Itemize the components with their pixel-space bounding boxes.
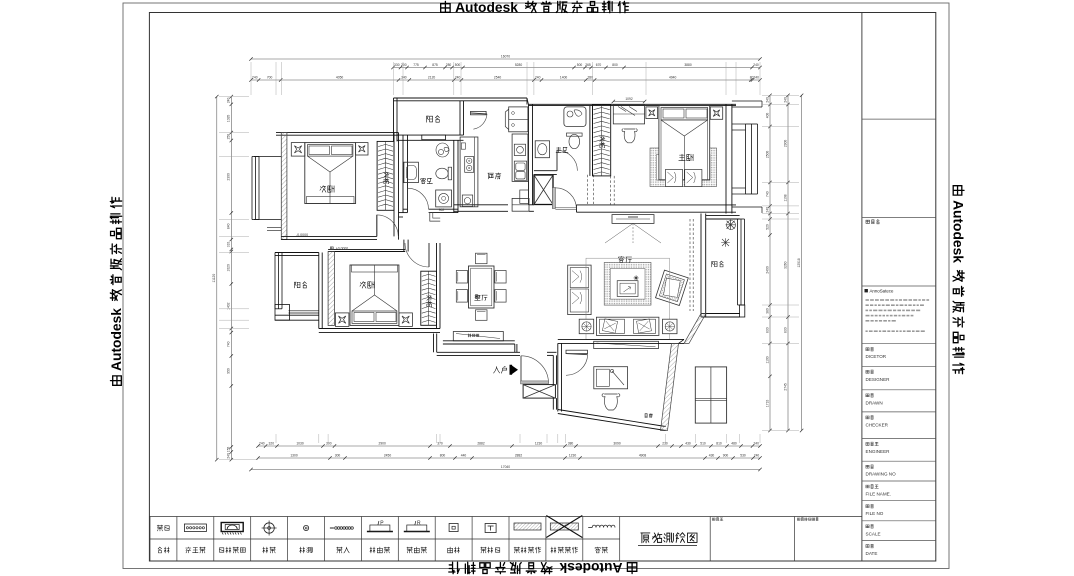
svg-text:ENGINEER: ENGINEER — [866, 449, 891, 454]
svg-text:2120: 2120 — [428, 75, 436, 79]
svg-text:DICETOR: DICETOR — [866, 354, 887, 359]
svg-text:830: 830 — [765, 327, 769, 333]
svg-text:800: 800 — [612, 63, 618, 67]
svg-text:240: 240 — [754, 453, 760, 457]
svg-text:CHECKER: CHECKER — [866, 422, 889, 427]
svg-text:2540: 2540 — [494, 75, 502, 79]
svg-text:2450: 2450 — [384, 453, 392, 457]
svg-text:440: 440 — [461, 453, 467, 457]
svg-text:280: 280 — [446, 63, 452, 67]
svg-text:240: 240 — [535, 75, 541, 79]
svg-text:430: 430 — [685, 441, 691, 445]
svg-text:265: 265 — [585, 63, 591, 67]
svg-text:700: 700 — [267, 75, 273, 79]
svg-text:FILE NO: FILE NO — [866, 511, 884, 516]
svg-text:310: 310 — [227, 242, 231, 248]
svg-text:DRAWING NO: DRAWING NO — [866, 472, 897, 477]
svg-text:775: 775 — [413, 63, 419, 67]
svg-text:962: 962 — [439, 208, 445, 212]
svg-text:1400: 1400 — [560, 75, 568, 79]
svg-text:830: 830 — [783, 327, 787, 333]
svg-text:240: 240 — [753, 441, 759, 445]
svg-text:+0.0000: +0.0000 — [336, 247, 348, 251]
svg-text:240: 240 — [753, 63, 759, 67]
svg-text:2882: 2882 — [515, 453, 523, 457]
svg-text:12018: 12018 — [797, 258, 801, 267]
svg-text:2500: 2500 — [765, 151, 769, 159]
svg-text:155: 155 — [227, 447, 231, 453]
svg-text:380: 380 — [568, 441, 574, 445]
svg-text:Autodesk: Autodesk — [455, 0, 518, 15]
svg-text:340: 340 — [401, 75, 407, 79]
svg-text:520: 520 — [765, 224, 769, 230]
svg-text:-0.0000: -0.0000 — [296, 233, 308, 237]
svg-text:480: 480 — [731, 441, 737, 445]
svg-text:FILE NAME.: FILE NAME. — [866, 492, 892, 497]
svg-text:240: 240 — [455, 75, 461, 79]
svg-text:16070: 16070 — [501, 54, 510, 58]
svg-text:2400: 2400 — [765, 266, 769, 274]
svg-text:2882: 2882 — [477, 441, 485, 445]
svg-text:240: 240 — [252, 75, 258, 79]
svg-text:670: 670 — [596, 63, 602, 67]
svg-text:SCALE: SCALE — [866, 531, 881, 536]
svg-text:DATE: DATE — [866, 551, 878, 556]
svg-text:320: 320 — [269, 441, 275, 445]
svg-text:4908: 4908 — [639, 453, 647, 457]
svg-text:430: 430 — [709, 453, 715, 457]
svg-text:Autodesk: Autodesk — [951, 200, 966, 263]
svg-text:510: 510 — [700, 441, 706, 445]
svg-text:3880: 3880 — [684, 63, 692, 67]
svg-text:11120: 11120 — [212, 274, 216, 283]
svg-text:240: 240 — [765, 207, 769, 213]
svg-text:240: 240 — [783, 97, 787, 103]
svg-text:3090: 3090 — [613, 441, 621, 445]
svg-text:1230: 1230 — [535, 441, 543, 445]
svg-text:740: 740 — [765, 191, 769, 197]
svg-text:Autodesk: Autodesk — [109, 308, 124, 371]
svg-text:740: 740 — [227, 341, 231, 347]
svg-text:530: 530 — [740, 453, 746, 457]
svg-text:2900: 2900 — [783, 140, 787, 148]
svg-text:2300: 2300 — [227, 173, 231, 181]
svg-text:500: 500 — [577, 63, 583, 67]
svg-text:230: 230 — [662, 441, 668, 445]
svg-text:240: 240 — [227, 453, 231, 459]
svg-text:875: 875 — [432, 63, 438, 67]
svg-text:250: 250 — [227, 134, 231, 140]
svg-text:2900: 2900 — [379, 441, 387, 445]
svg-text:1100: 1100 — [765, 356, 769, 363]
svg-text:1108: 1108 — [783, 194, 787, 201]
svg-text:1030: 1030 — [296, 441, 304, 445]
svg-text:800: 800 — [440, 453, 446, 457]
svg-text:Autodesk: Autodesk — [559, 560, 622, 575]
svg-text:400: 400 — [765, 113, 769, 119]
svg-text:5280: 5280 — [515, 63, 523, 67]
svg-text:1710: 1710 — [765, 400, 769, 408]
svg-text:DESIGNER: DESIGNER — [866, 377, 891, 382]
svg-text:300: 300 — [326, 441, 332, 445]
svg-text:500: 500 — [455, 63, 461, 67]
svg-text:AnnoSatece: AnnoSatece — [870, 289, 894, 294]
svg-text:1020: 1020 — [227, 264, 231, 272]
svg-text:950: 950 — [227, 368, 231, 374]
svg-text:1230: 1230 — [569, 453, 577, 457]
svg-text:1300: 1300 — [290, 453, 298, 457]
svg-text:4940: 4940 — [669, 75, 677, 79]
svg-text:240: 240 — [259, 441, 265, 445]
svg-text:1020: 1020 — [227, 115, 231, 123]
svg-text:840: 840 — [227, 223, 231, 229]
svg-text:280: 280 — [587, 75, 593, 79]
svg-text:2745: 2745 — [783, 383, 787, 391]
svg-text:DRAWN: DRAWN — [866, 400, 883, 405]
svg-text:810: 810 — [716, 441, 722, 445]
svg-text:17040: 17040 — [501, 465, 510, 469]
svg-text:4050: 4050 — [336, 75, 344, 79]
svg-text:1092: 1092 — [625, 97, 633, 101]
svg-text:R: R — [417, 521, 421, 527]
svg-text:240: 240 — [765, 97, 769, 103]
svg-text:200: 200 — [401, 63, 407, 67]
svg-text:330: 330 — [394, 63, 400, 67]
svg-text:380: 380 — [765, 308, 769, 314]
svg-text:300: 300 — [335, 453, 341, 457]
svg-text:240: 240 — [227, 97, 231, 103]
svg-text:3260: 3260 — [783, 261, 787, 269]
svg-text:240: 240 — [753, 75, 759, 79]
svg-text:900: 900 — [723, 453, 729, 457]
